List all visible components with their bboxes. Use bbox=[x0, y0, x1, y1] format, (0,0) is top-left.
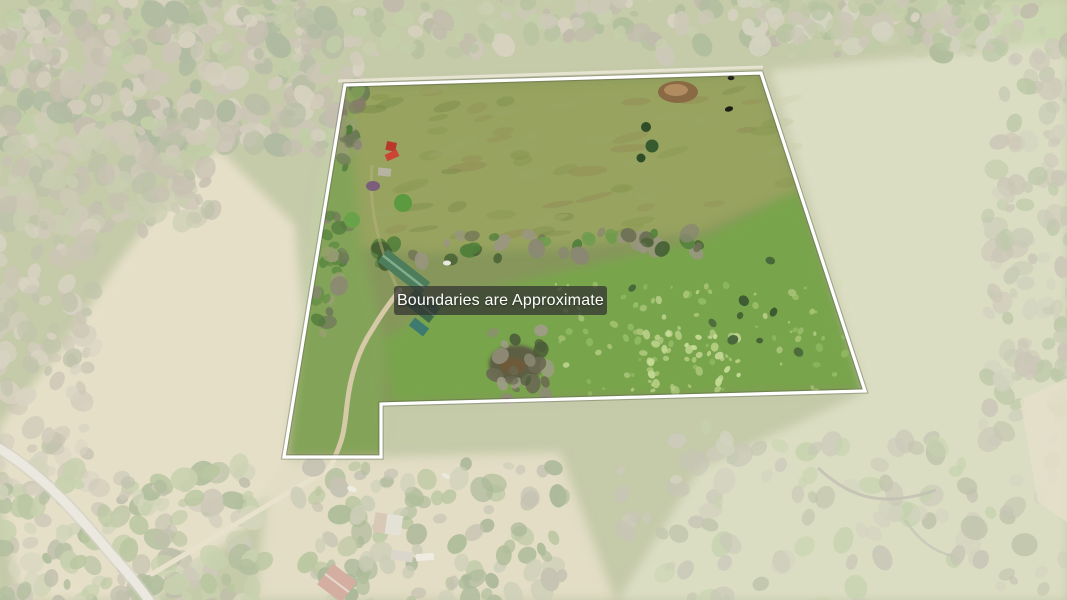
real-estate-aerial-screenshot: Boundaries are Approximate bbox=[0, 0, 1067, 600]
boundary-disclaimer-label: Boundaries are Approximate bbox=[394, 286, 607, 315]
